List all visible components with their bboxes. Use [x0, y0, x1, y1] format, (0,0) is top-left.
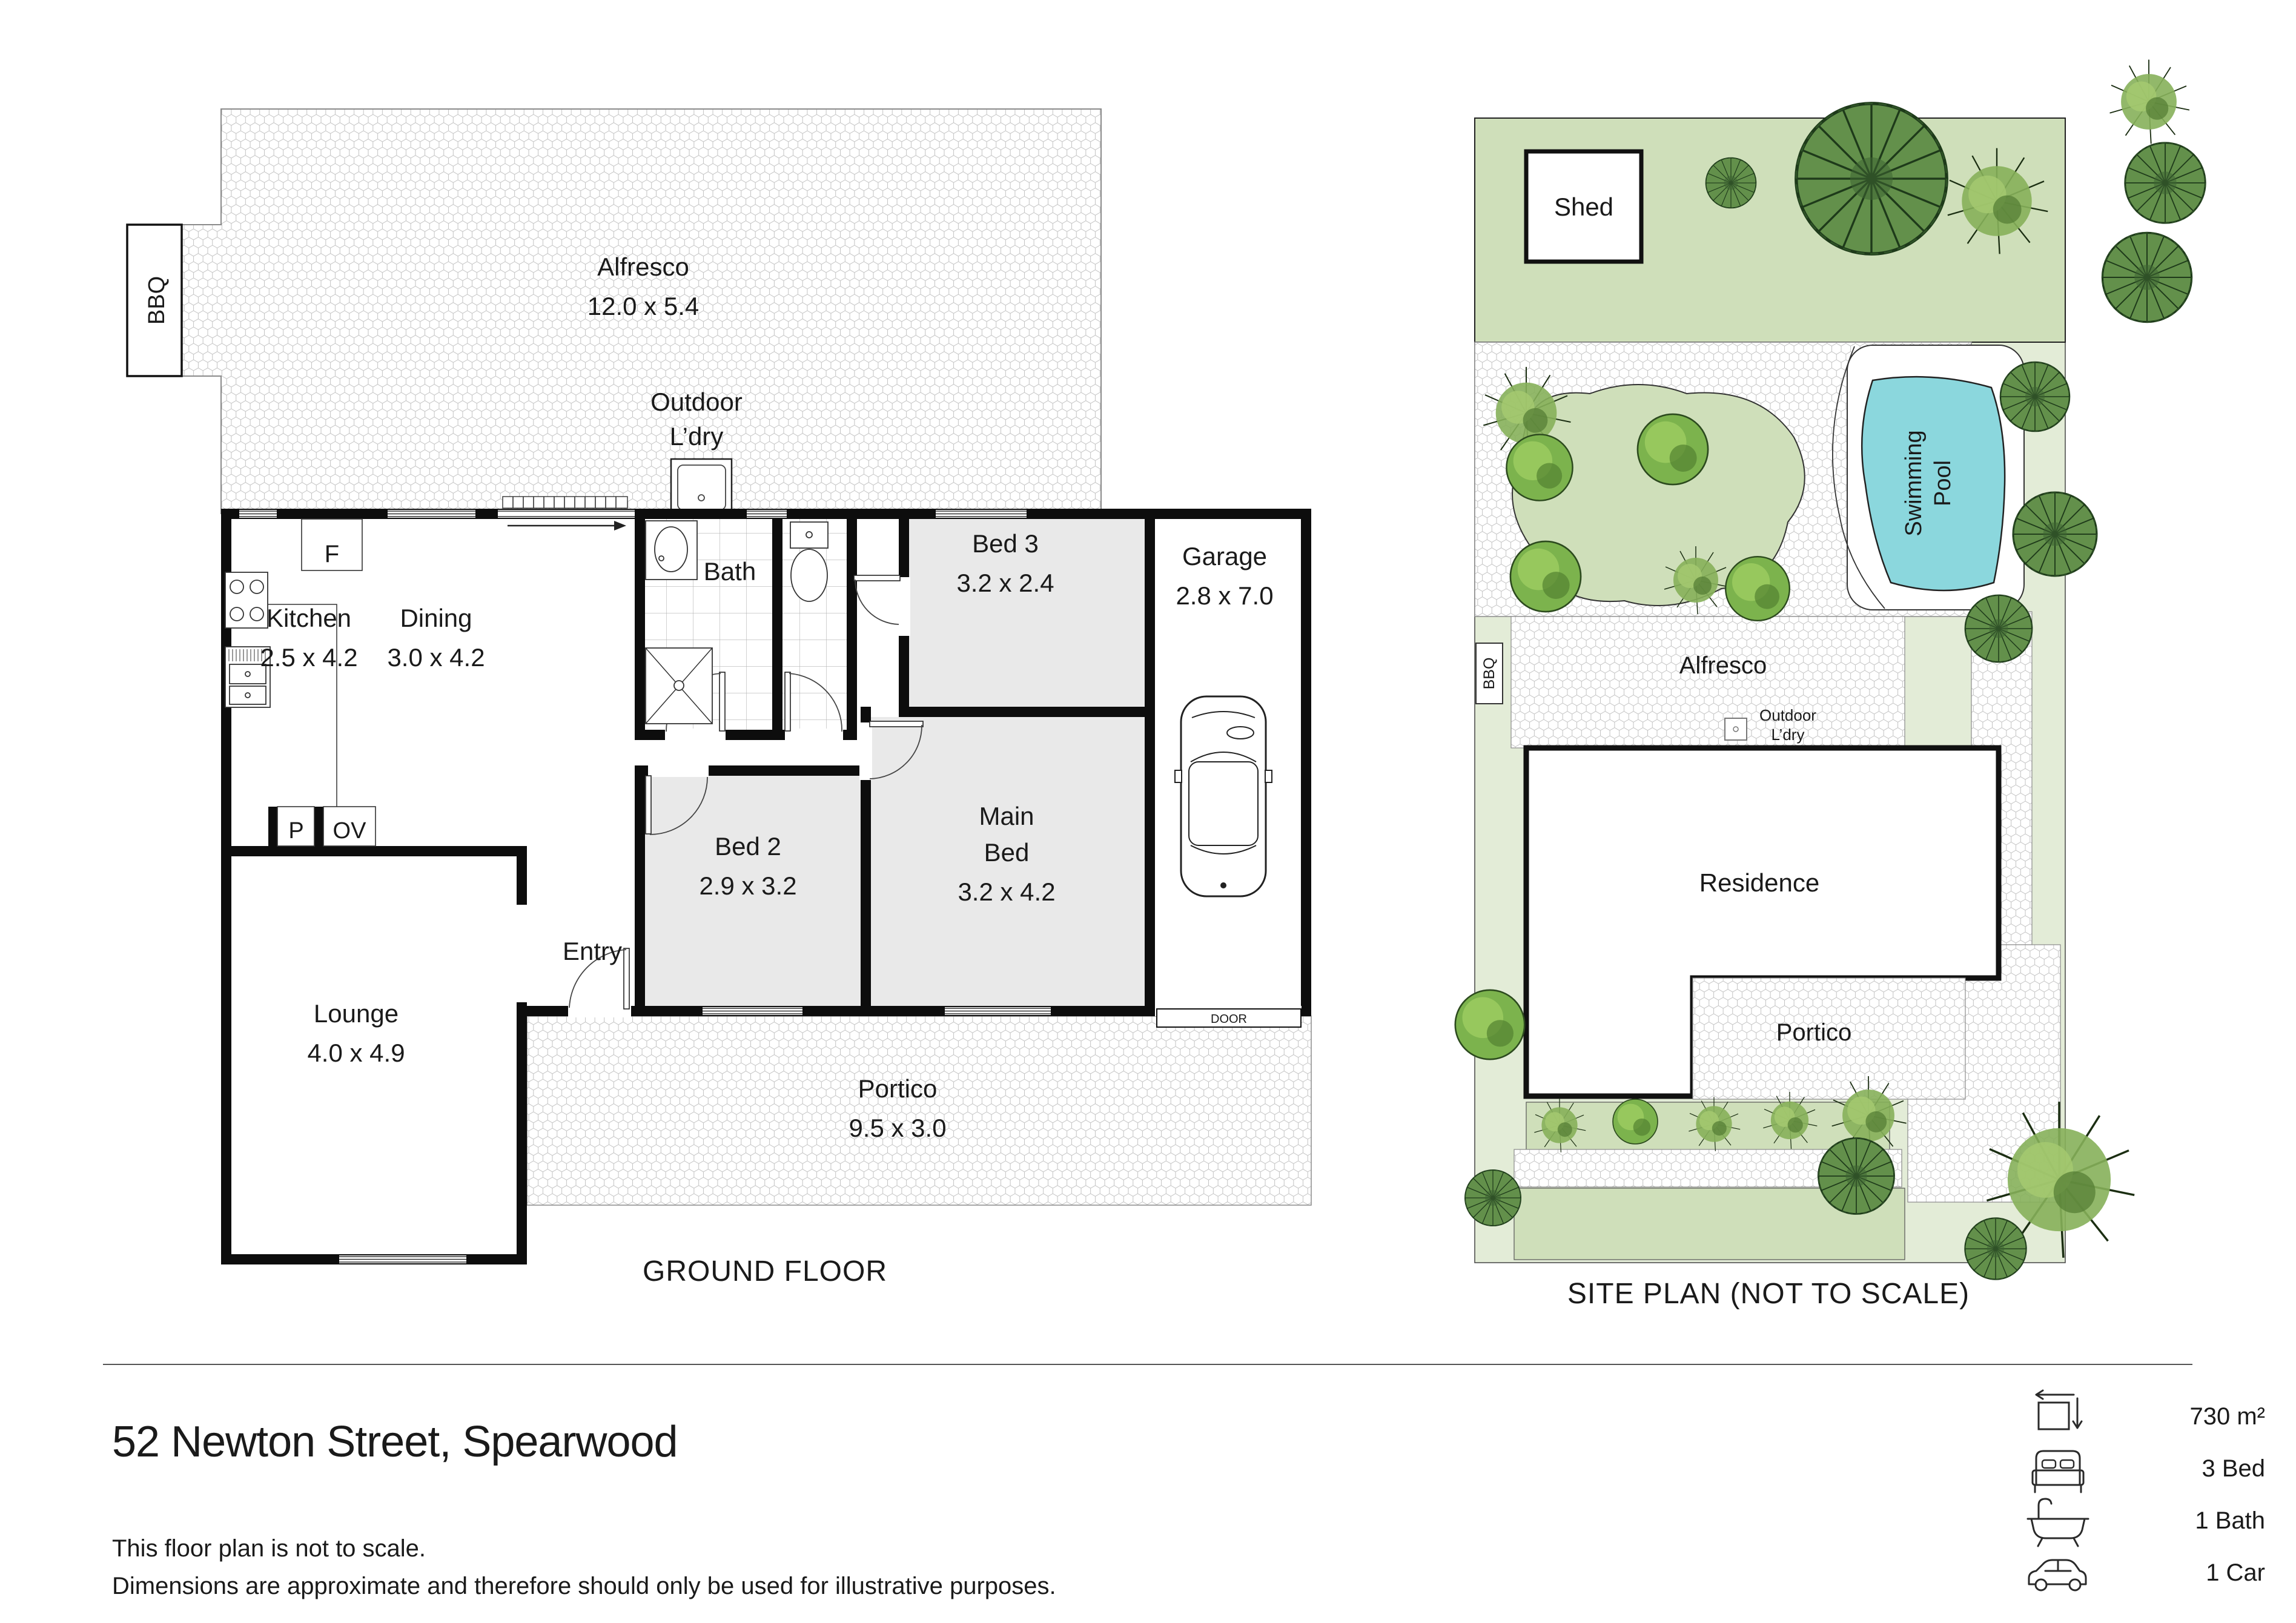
area-label: 730 m² [2190, 1403, 2266, 1430]
pool-label1: Swimming [1901, 430, 1927, 536]
cars-label: 1 Car [2206, 1559, 2265, 1586]
baths-label: 1 Bath [2195, 1507, 2265, 1534]
site-residence-label: Residence [1699, 868, 1819, 897]
lounge-window [339, 1255, 466, 1263]
pool-label2: Pool [1930, 460, 1956, 506]
outdoor-ldry-line1: Outdoor [650, 388, 743, 416]
palm-tree-icon [2125, 143, 2205, 223]
bed3-dims: 3.2 x 2.4 [956, 569, 1054, 597]
oven-box: OV [323, 807, 375, 846]
shed: Shed [1526, 151, 1641, 262]
bush-icon [1613, 1099, 1658, 1144]
garage-dims: 2.8 x 7.0 [1176, 581, 1273, 610]
bath-window [747, 510, 787, 518]
bush-icon [1638, 414, 1708, 484]
kitchen-dims: 2.5 x 4.2 [260, 643, 357, 672]
portico-dims: 9.5 x 3.0 [849, 1114, 946, 1142]
site-outdoor-label1: Outdoor [1759, 706, 1816, 724]
page-title: 52 Newton Street, Spearwood [112, 1418, 678, 1466]
bush-icon [1510, 541, 1581, 612]
garage-door-label: DOOR [1211, 1013, 1247, 1026]
ground-floor-plan: BBQ Alfresco 12.0 x 5.4 Outdoor L’dry [127, 109, 1311, 1287]
car-icon [2029, 1560, 2086, 1590]
lounge-name: Lounge [314, 999, 399, 1028]
site-alfresco-paving [1511, 616, 1905, 748]
ground-floor-caption: GROUND FLOOR [643, 1255, 887, 1287]
palm-tree-icon [1818, 1138, 1894, 1214]
palm-tree-icon [1465, 1170, 1521, 1226]
floorplan-canvas: BBQ Alfresco 12.0 x 5.4 Outdoor L’dry [0, 0, 2296, 1623]
stove-icon [225, 572, 268, 628]
dining-name: Dining [400, 604, 472, 632]
fridge-label: F [325, 541, 339, 567]
bed2-name: Bed 2 [715, 832, 781, 861]
garage-door: DOOR [1155, 1006, 1302, 1027]
bed2-dims: 2.9 x 3.2 [699, 871, 796, 900]
site-plan: Swimming Pool Shed Alfresco Outdoor L’dr… [1455, 60, 2205, 1310]
site-portico-label: Portico [1776, 1019, 1852, 1046]
shaggy-tree-icon [2110, 60, 2189, 144]
bed3-name: Bed 3 [972, 529, 1039, 558]
outdoor-ldry-line2: L’dry [670, 422, 724, 451]
palm-tree-icon [1706, 158, 1756, 208]
main-bed-dims: 3.2 x 4.2 [958, 878, 1055, 906]
car-top-icon [1175, 696, 1272, 896]
bush-icon [1455, 990, 1524, 1059]
alfresco-name: Alfresco [597, 253, 689, 281]
site-alfresco-label: Alfresco [1679, 652, 1767, 679]
toilet-icon [790, 522, 828, 601]
shower-icon [646, 648, 712, 724]
bed-icon [2033, 1451, 2083, 1492]
dining-dims: 3.0 x 4.2 [387, 643, 485, 672]
site-outdoor-sink-icon [1725, 718, 1747, 740]
palm-tree-icon [2013, 492, 2097, 576]
lounge-dims: 4.0 x 4.9 [307, 1039, 405, 1067]
site-bbq-label: BBQ [1481, 658, 1498, 690]
sliding-door [498, 497, 635, 531]
kitchen-window [239, 510, 277, 518]
kitchen-name: Kitchen [266, 604, 351, 632]
bed3-window [936, 510, 1027, 518]
bath-name: Bath [704, 557, 756, 586]
palm-tree-icon [2102, 233, 2191, 322]
main-bed-window [945, 1007, 1051, 1015]
palm-tree-icon [2000, 362, 2069, 431]
beds-label: 3 Bed [2202, 1455, 2265, 1482]
pantry-box: P [277, 807, 314, 846]
bush-icon [1725, 557, 1790, 621]
fridge-recess: F [302, 519, 362, 570]
portico-name: Portico [858, 1074, 938, 1103]
site-plan-caption: SITE PLAN (NOT TO SCALE) [1567, 1278, 1970, 1310]
palm-tree-icon [1965, 595, 2032, 662]
shed-label: Shed [1554, 193, 1613, 221]
bath-sink-icon [646, 521, 697, 580]
dining-window [388, 510, 475, 518]
bath-icon [2028, 1499, 2088, 1546]
portico-paving [527, 1016, 1311, 1205]
disclaimer-line1: This floor plan is not to scale. [112, 1535, 426, 1562]
footer: 52 Newton Street, Spearwood This floor p… [103, 1364, 2265, 1599]
site-bbq: BBQ [1476, 643, 1503, 704]
outdoor-sink-icon [671, 459, 732, 515]
main-bed-name1: Main [979, 802, 1034, 830]
disclaimer-line2: Dimensions are approximate and therefore… [112, 1573, 1056, 1599]
site-outdoor-label2: L’dry [1772, 726, 1805, 744]
main-bed-name2: Bed [984, 838, 1030, 867]
palm-tree-icon [1796, 104, 1947, 254]
bed2-window [703, 1007, 802, 1015]
bbq-label: BBQ [144, 276, 170, 325]
area-icon [2036, 1390, 2082, 1429]
garage-name: Garage [1182, 542, 1267, 570]
pantry-label: P [288, 818, 303, 844]
palm-tree-icon [1965, 1218, 2026, 1279]
bush-icon [1506, 434, 1572, 500]
oven-label: OV [333, 818, 367, 844]
entry-name: Entry [563, 937, 622, 965]
alfresco-dims: 12.0 x 5.4 [587, 292, 699, 320]
